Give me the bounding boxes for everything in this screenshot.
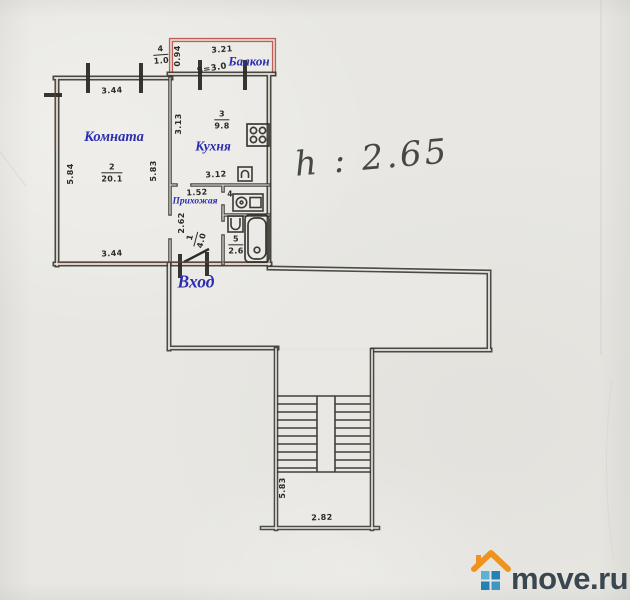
room-label-balcony: Балкон	[228, 55, 269, 68]
living-room-stat: 2 20.1	[101, 162, 122, 183]
room-label-kitchen: Кухня	[195, 139, 231, 153]
dim-room-top: 3.44	[101, 86, 123, 95]
dim-stair-width: 2.82	[311, 514, 333, 523]
moveru-logo-text: move.ru	[511, 563, 628, 594]
wc-room-number: 4	[227, 190, 233, 198]
scanned-floorplan-page: Комната Кухня Балкон Прихожая Вход 2 20.…	[0, 0, 630, 600]
floorplan-drawing	[0, 0, 630, 600]
living-room-area: 20.1	[101, 174, 122, 184]
dim-kitchen-bottom: 3.12	[205, 170, 227, 179]
house-icon	[470, 548, 512, 594]
balcony-area: 1.0	[153, 55, 169, 66]
bathroom-stat: 5 2.6	[228, 234, 243, 255]
dim-hall-top: 1.52	[186, 188, 208, 197]
room-label-living: Комната	[84, 130, 144, 145]
dim-room-bottom: 3.44	[101, 249, 123, 258]
dim-hall-left: 2.62	[178, 212, 186, 233]
bathroom-number: 5	[228, 234, 243, 245]
kitchen-stat: 3 9.8	[214, 109, 229, 130]
kitchen-area: 9.8	[214, 121, 229, 131]
living-room-number: 2	[101, 162, 122, 173]
moveru-logo: move.ru	[470, 548, 630, 594]
entrance-label: Вход	[178, 273, 215, 291]
dim-room-left: 5.84	[67, 163, 75, 184]
dim-balcony-depth: 0.94	[174, 45, 182, 66]
dim-room-right: 5.83	[150, 160, 158, 181]
dim-stair-height: 5.83	[279, 477, 287, 498]
bathroom-area: 2.6	[228, 246, 243, 256]
balcony-stat: 4 1.0	[153, 44, 170, 66]
kitchen-number: 3	[214, 109, 229, 120]
dim-balcony-width: 3.21	[211, 45, 233, 54]
room-fills	[58, 41, 488, 527]
room-label-hallway: Прихожая	[172, 197, 217, 207]
dim-kitchen-left: 3.13	[175, 113, 183, 134]
